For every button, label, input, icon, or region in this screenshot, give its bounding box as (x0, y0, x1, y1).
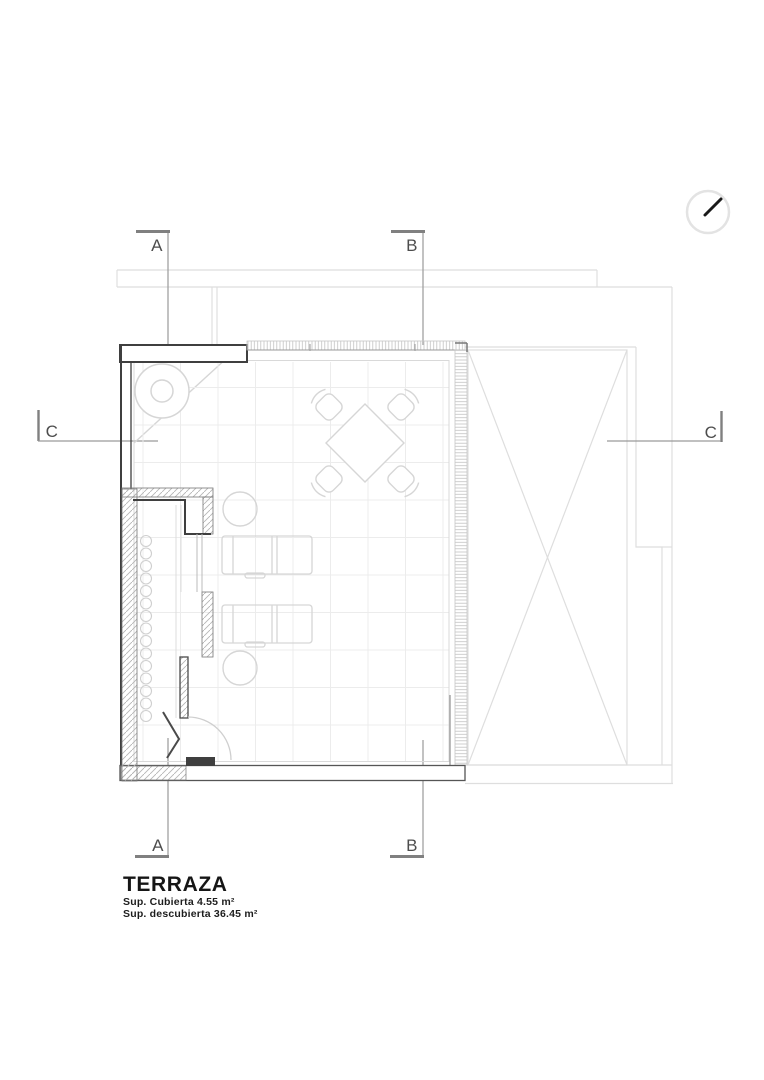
sun-lounger-2 (222, 605, 312, 647)
section-marker-b-top: B (406, 236, 418, 256)
corner-column-planter (135, 364, 189, 418)
baluster-row (141, 536, 152, 722)
door-threshold (186, 757, 215, 766)
section-marker-a-top: A (151, 236, 163, 256)
area-covered-label: Sup. Cubierta 4.55 m² (123, 896, 258, 908)
dining-chair (385, 463, 421, 499)
dining-chair (309, 463, 345, 499)
plan-title: TERRAZA (123, 874, 258, 896)
roof-skylight-x-box (468, 350, 627, 765)
dining-table (326, 404, 404, 482)
section-marker-c-right: C (705, 423, 718, 443)
door-swing-arc (188, 717, 231, 760)
area-uncovered-label: Sup. descubierta 36.45 m² (123, 908, 258, 920)
section-marker-a-bottom: A (152, 836, 164, 856)
section-marker-c-left: C (46, 422, 59, 442)
architectural-drawing-canvas: A B C C A B TERRAZA Sup. Cubierta 4.55 m… (0, 0, 764, 1080)
side-table-plant (223, 492, 257, 685)
dining-chair (309, 387, 345, 423)
sun-lounger-1 (222, 536, 312, 578)
dining-set (309, 387, 422, 500)
floor-plan-drawing (0, 0, 764, 1080)
covered-strip-room (122, 488, 231, 781)
title-block: TERRAZA Sup. Cubierta 4.55 m² Sup. descu… (123, 874, 258, 920)
section-marker-b-bottom: B (406, 836, 418, 856)
dining-chair (385, 387, 421, 423)
section-lines (38, 232, 722, 857)
folding-door-leaf (163, 712, 179, 758)
north-arrow-icon (684, 188, 732, 236)
